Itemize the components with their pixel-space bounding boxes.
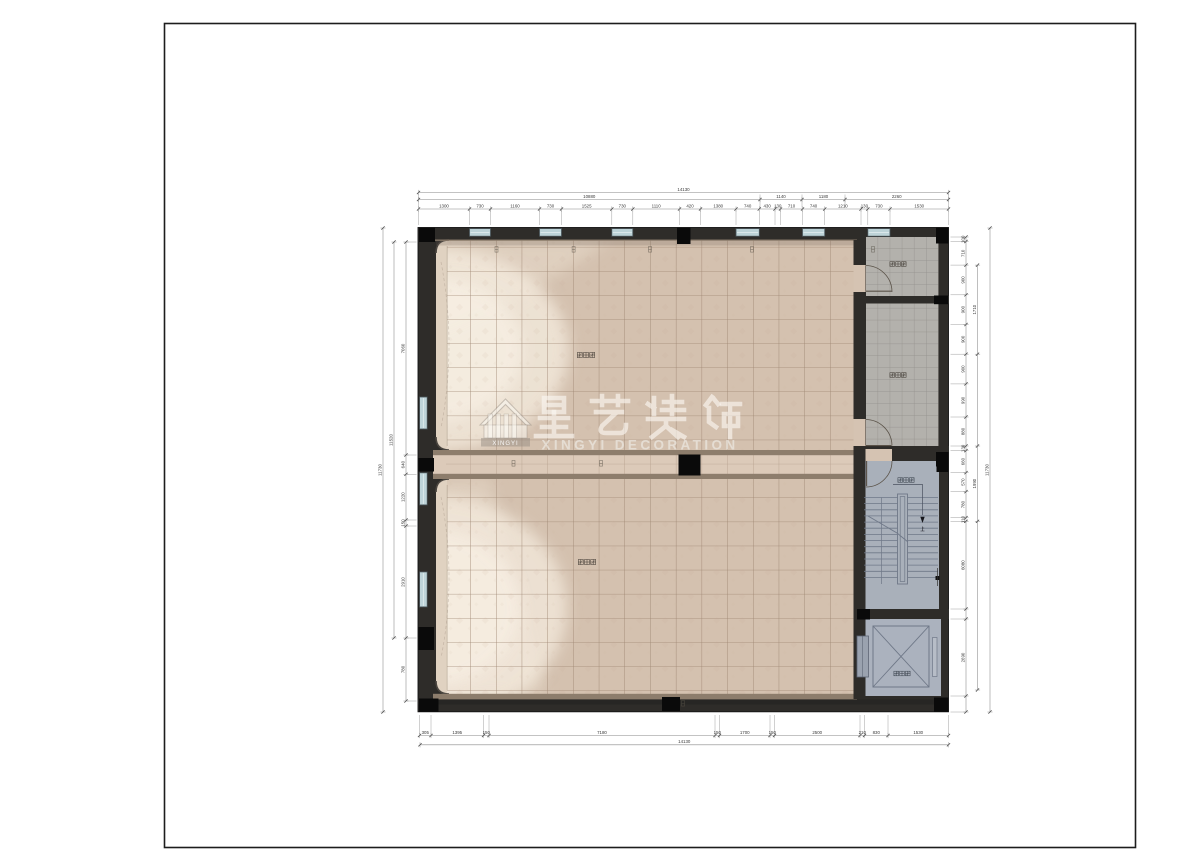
svg-text:1530: 1530 xyxy=(913,730,923,735)
svg-text:150: 150 xyxy=(714,730,722,735)
svg-text:14130: 14130 xyxy=(678,739,691,744)
svg-text:110: 110 xyxy=(960,515,965,523)
svg-text:730: 730 xyxy=(476,203,484,208)
svg-text:210: 210 xyxy=(859,730,867,735)
svg-text:830: 830 xyxy=(873,730,881,735)
svg-text:100: 100 xyxy=(960,235,965,243)
svg-text:2690: 2690 xyxy=(960,652,965,662)
svg-text:900: 900 xyxy=(960,365,965,373)
svg-text:14130: 14130 xyxy=(677,187,690,192)
svg-text:150: 150 xyxy=(769,730,777,735)
svg-text:430: 430 xyxy=(763,203,771,208)
svg-text:1210: 1210 xyxy=(838,203,848,208)
svg-text:XINGYI DECORATION: XINGYI DECORATION xyxy=(541,438,738,453)
svg-text:570: 570 xyxy=(960,478,965,486)
svg-text:640: 640 xyxy=(400,460,405,468)
svg-text:1380: 1380 xyxy=(713,203,723,208)
svg-text:780: 780 xyxy=(960,500,965,508)
svg-text:730: 730 xyxy=(875,203,883,208)
svg-text:1525: 1525 xyxy=(582,203,592,208)
svg-text:2500: 2500 xyxy=(812,730,822,735)
svg-text:1395: 1395 xyxy=(452,730,462,735)
svg-text:2910: 2910 xyxy=(400,577,405,587)
svg-text:660: 660 xyxy=(960,457,965,465)
svg-text:305: 305 xyxy=(422,730,430,735)
svg-text:7180: 7180 xyxy=(597,730,607,735)
svg-text:1160: 1160 xyxy=(510,203,520,208)
svg-text:11730: 11730 xyxy=(984,464,989,476)
svg-text:1990: 1990 xyxy=(972,478,977,488)
svg-text:130: 130 xyxy=(861,203,869,208)
svg-text:7060: 7060 xyxy=(400,343,405,353)
svg-text:1180: 1180 xyxy=(819,194,829,199)
svg-text:880: 880 xyxy=(960,427,965,435)
svg-text:900: 900 xyxy=(960,335,965,343)
svg-text:11520: 11520 xyxy=(388,434,393,446)
svg-text:2260: 2260 xyxy=(892,194,902,199)
svg-text:150: 150 xyxy=(400,519,405,527)
svg-text:XINGYI: XINGYI xyxy=(492,441,518,447)
svg-text:780: 780 xyxy=(400,665,405,673)
svg-text:11730: 11730 xyxy=(377,464,382,476)
svg-text:710: 710 xyxy=(960,249,965,257)
svg-text:900: 900 xyxy=(960,276,965,284)
svg-text:150: 150 xyxy=(483,730,491,735)
svg-text:740: 740 xyxy=(810,203,818,208)
svg-text:900: 900 xyxy=(960,305,965,313)
svg-text:1300: 1300 xyxy=(439,203,449,208)
svg-text:6080: 6080 xyxy=(960,560,965,570)
svg-text:130: 130 xyxy=(960,444,965,452)
svg-text:1140: 1140 xyxy=(776,194,786,199)
svg-text:1530: 1530 xyxy=(914,203,924,208)
svg-text:10880: 10880 xyxy=(583,194,596,199)
svg-text:1110: 1110 xyxy=(652,203,662,208)
svg-text:1710: 1710 xyxy=(972,304,977,314)
svg-text:130: 130 xyxy=(774,203,782,208)
svg-text:990: 990 xyxy=(960,396,965,404)
svg-text:420: 420 xyxy=(686,203,694,208)
svg-text:1220: 1220 xyxy=(400,492,405,502)
svg-text:730: 730 xyxy=(619,203,627,208)
svg-text:740: 740 xyxy=(744,203,752,208)
svg-text:730: 730 xyxy=(547,203,555,208)
svg-text:1700: 1700 xyxy=(740,730,750,735)
svg-text:710: 710 xyxy=(788,203,796,208)
